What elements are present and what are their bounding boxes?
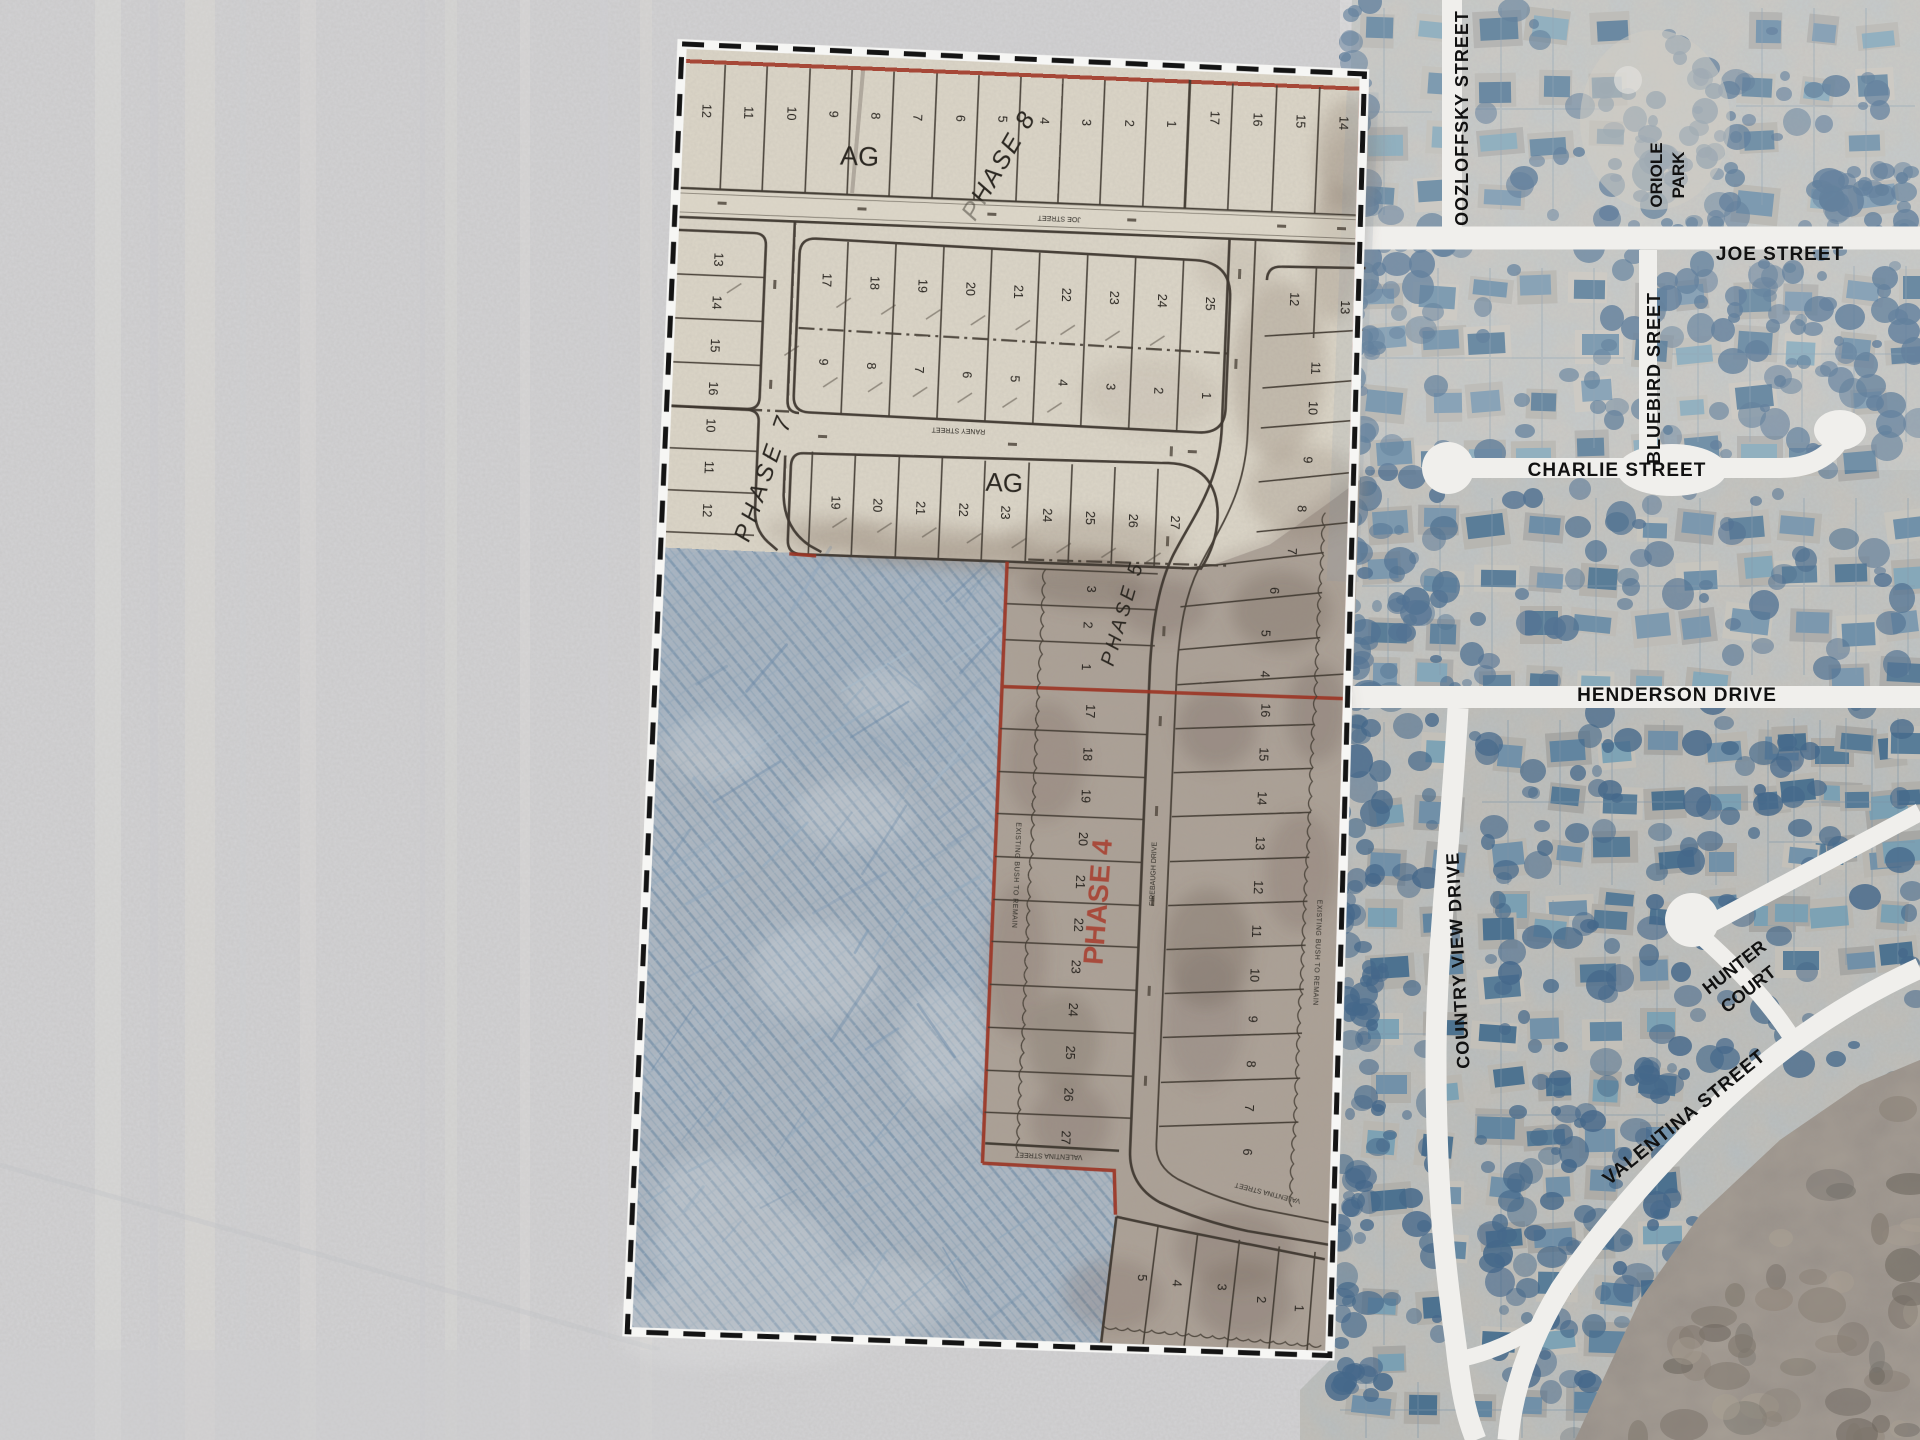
svg-text:23: 23 xyxy=(1107,291,1122,306)
svg-text:13: 13 xyxy=(711,252,726,267)
svg-text:26: 26 xyxy=(1061,1087,1076,1102)
svg-text:JOE STREET: JOE STREET xyxy=(1716,244,1844,265)
svg-text:ORIOLE: ORIOLE xyxy=(1647,142,1666,207)
svg-text:19: 19 xyxy=(828,495,843,510)
svg-text:1: 1 xyxy=(1199,392,1213,400)
svg-text:21: 21 xyxy=(1011,285,1026,300)
svg-text:6: 6 xyxy=(960,371,974,379)
svg-text:7: 7 xyxy=(1285,548,1299,556)
svg-text:AG: AG xyxy=(985,467,1024,499)
svg-text:18: 18 xyxy=(1080,747,1095,762)
svg-text:5: 5 xyxy=(1258,630,1272,638)
svg-text:12: 12 xyxy=(1287,292,1302,307)
svg-text:2: 2 xyxy=(1151,387,1165,395)
svg-text:1: 1 xyxy=(1164,120,1178,128)
svg-text:12: 12 xyxy=(1251,880,1266,895)
svg-text:12: 12 xyxy=(699,104,714,119)
svg-text:8: 8 xyxy=(1294,505,1308,513)
svg-text:13: 13 xyxy=(1253,836,1268,851)
svg-text:20: 20 xyxy=(963,282,978,297)
svg-text:27: 27 xyxy=(1168,515,1183,530)
svg-text:11: 11 xyxy=(1308,361,1323,375)
svg-text:19: 19 xyxy=(1078,789,1093,804)
svg-text:15: 15 xyxy=(1293,114,1308,129)
svg-text:6: 6 xyxy=(1267,587,1281,595)
svg-text:13: 13 xyxy=(1338,300,1353,315)
svg-text:14: 14 xyxy=(709,295,724,310)
svg-text:11: 11 xyxy=(741,106,756,120)
svg-text:17: 17 xyxy=(1207,111,1222,126)
svg-text:24: 24 xyxy=(1155,294,1170,309)
svg-text:26: 26 xyxy=(1126,514,1141,529)
svg-text:15: 15 xyxy=(1256,747,1271,762)
svg-text:CHARLIE STREET: CHARLIE STREET xyxy=(1528,460,1707,481)
svg-text:10: 10 xyxy=(1305,401,1320,416)
svg-text:HENDERSON DRIVE: HENDERSON DRIVE xyxy=(1577,685,1777,706)
svg-text:6: 6 xyxy=(953,115,967,123)
svg-text:8: 8 xyxy=(864,362,878,370)
svg-text:16: 16 xyxy=(706,381,721,396)
svg-text:22: 22 xyxy=(956,503,971,518)
svg-text:4: 4 xyxy=(1258,671,1272,679)
svg-text:1: 1 xyxy=(1292,1305,1306,1313)
svg-text:18: 18 xyxy=(867,276,882,291)
svg-text:3: 3 xyxy=(1084,585,1098,593)
svg-text:9: 9 xyxy=(1300,456,1314,464)
svg-text:3: 3 xyxy=(1103,383,1117,391)
svg-text:10: 10 xyxy=(1247,968,1262,983)
svg-text:PARK: PARK xyxy=(1669,151,1688,199)
svg-text:8: 8 xyxy=(868,112,882,120)
svg-text:OOZLOFFSKY STREET: OOZLOFFSKY STREET xyxy=(1452,10,1472,226)
svg-text:1: 1 xyxy=(1079,663,1093,671)
svg-text:6: 6 xyxy=(1240,1148,1254,1156)
svg-text:17: 17 xyxy=(819,273,834,288)
svg-text:4: 4 xyxy=(1055,379,1069,387)
svg-text:24: 24 xyxy=(1066,1003,1081,1018)
svg-text:5: 5 xyxy=(1135,1274,1149,1282)
svg-text:7: 7 xyxy=(912,366,926,374)
svg-text:8: 8 xyxy=(1244,1060,1258,1068)
svg-text:4: 4 xyxy=(1170,1279,1184,1287)
svg-text:24: 24 xyxy=(1040,508,1055,523)
svg-text:16: 16 xyxy=(1250,112,1265,127)
svg-text:15: 15 xyxy=(707,338,722,353)
svg-text:2: 2 xyxy=(1254,1296,1268,1304)
svg-text:3: 3 xyxy=(1079,119,1093,127)
svg-text:3: 3 xyxy=(1214,1283,1228,1291)
svg-text:23: 23 xyxy=(998,505,1013,520)
svg-text:17: 17 xyxy=(1083,704,1098,719)
svg-text:25: 25 xyxy=(1083,511,1098,526)
svg-text:25: 25 xyxy=(1063,1045,1078,1060)
svg-text:22: 22 xyxy=(1059,288,1074,303)
svg-text:9: 9 xyxy=(816,358,830,366)
svg-text:5: 5 xyxy=(1007,375,1021,383)
svg-text:21: 21 xyxy=(913,501,928,516)
svg-text:7: 7 xyxy=(1242,1104,1256,1112)
svg-text:14: 14 xyxy=(1336,116,1351,131)
svg-text:7: 7 xyxy=(910,114,924,122)
svg-text:11: 11 xyxy=(701,461,716,475)
svg-text:AG: AG xyxy=(840,141,880,173)
svg-text:19: 19 xyxy=(915,279,930,294)
svg-text:9: 9 xyxy=(1245,1015,1259,1023)
svg-text:11: 11 xyxy=(1249,924,1264,938)
svg-text:16: 16 xyxy=(1258,703,1273,718)
svg-text:14: 14 xyxy=(1254,791,1269,806)
svg-text:12: 12 xyxy=(700,503,715,518)
svg-text:10: 10 xyxy=(784,106,799,121)
svg-text:27: 27 xyxy=(1058,1130,1073,1145)
svg-text:25: 25 xyxy=(1203,297,1218,312)
svg-text:10: 10 xyxy=(703,418,718,433)
svg-text:2: 2 xyxy=(1122,120,1136,128)
svg-text:9: 9 xyxy=(826,110,840,118)
svg-text:2: 2 xyxy=(1080,621,1094,629)
svg-text:20: 20 xyxy=(870,498,885,513)
svg-text:BLUEBIRD SREET: BLUEBIRD SREET xyxy=(1644,292,1664,464)
